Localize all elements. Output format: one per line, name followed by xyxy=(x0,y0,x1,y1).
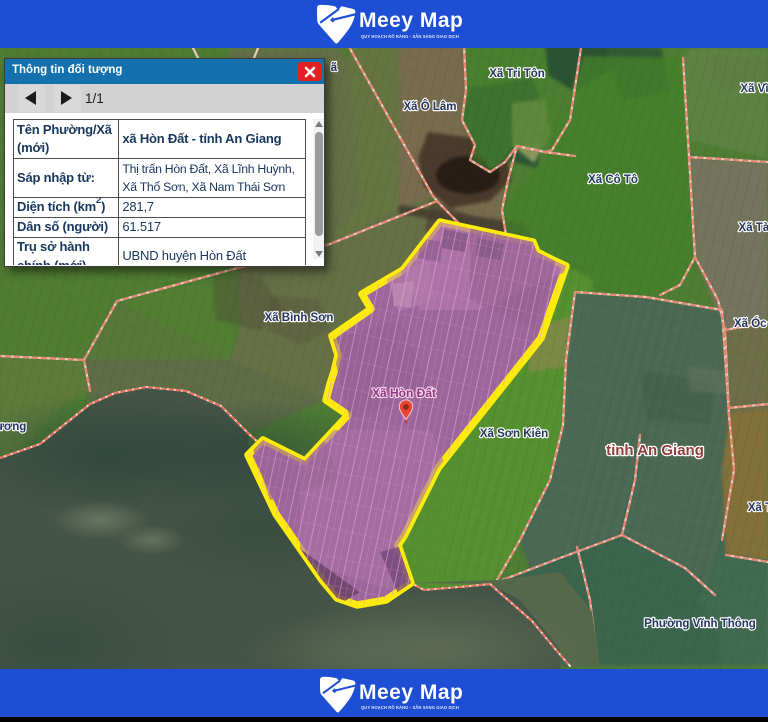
svg-text:ã: ã xyxy=(331,62,338,74)
svg-text:Xã Hòn Đất: Xã Hòn Đất xyxy=(372,386,436,400)
svg-text:ương: ương xyxy=(0,421,26,433)
svg-text:Xã Bình Sơn: Xã Bình Sơn xyxy=(265,312,334,324)
svg-text:Xã Ô Lâm: Xã Ô Lâm xyxy=(403,100,456,113)
svg-text:Xã Tri Tôn: Xã Tri Tôn xyxy=(489,68,545,80)
svg-text:tỉnh An Giang: tỉnh An Giang xyxy=(606,442,704,459)
svg-text:Xã Cô Tô: Xã Cô Tô xyxy=(588,174,638,186)
svg-text:Xã Tà T: Xã Tà T xyxy=(739,222,768,234)
svg-text:Xã Óc Đ: Xã Óc Đ xyxy=(734,317,768,330)
svg-text:Xã T: Xã T xyxy=(748,502,768,514)
svg-text:Xã Vĩn: Xã Vĩn xyxy=(740,83,768,95)
svg-text:Xã Sơn Kiên: Xã Sơn Kiên xyxy=(480,428,548,440)
svg-text:Phường Vĩnh Thông: Phường Vĩnh Thông xyxy=(644,618,756,630)
